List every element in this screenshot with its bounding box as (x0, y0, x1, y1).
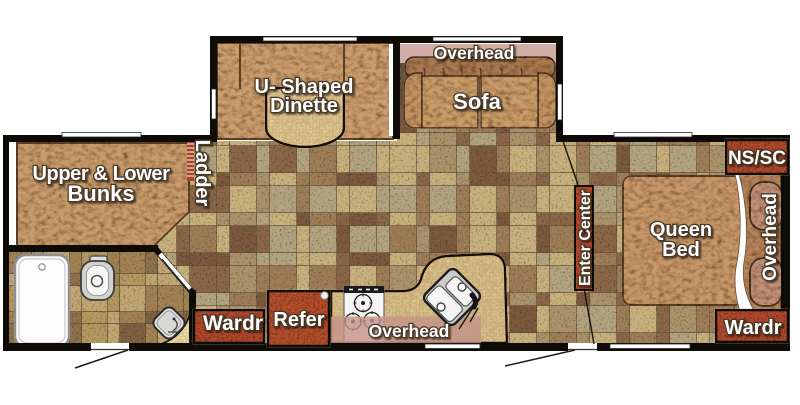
svg-text:Overhead: Overhead (434, 43, 515, 63)
svg-text:NS/SC: NS/SC (728, 148, 786, 169)
svg-text:Dinette: Dinette (270, 95, 338, 117)
svg-text:Overhead: Overhead (760, 193, 781, 281)
svg-text:Refer: Refer (273, 309, 324, 331)
svg-text:Queen: Queen (650, 219, 712, 241)
svg-text:Bed: Bed (662, 239, 700, 261)
svg-text:Enter Center: Enter Center (577, 190, 594, 286)
svg-text:Wardr: Wardr (724, 317, 781, 339)
svg-text:Overhead: Overhead (369, 321, 450, 341)
svg-text:Sofa: Sofa (453, 89, 501, 114)
svg-text:Wardr: Wardr (203, 312, 263, 335)
svg-text:Ladder: Ladder (191, 140, 213, 207)
svg-text:Bunks: Bunks (67, 181, 134, 206)
